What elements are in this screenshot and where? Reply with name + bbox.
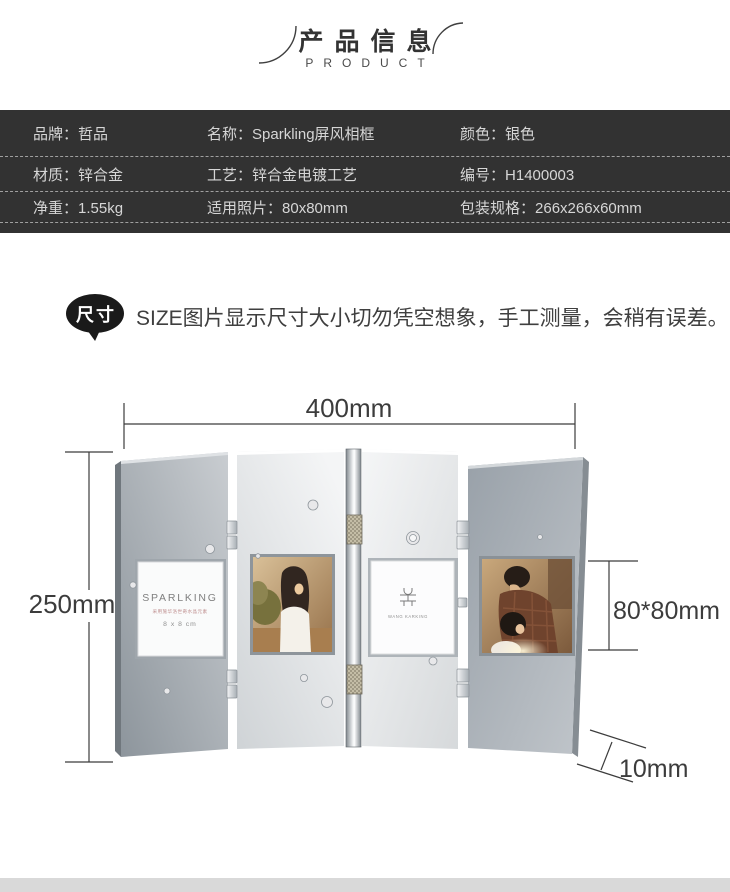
spec-photo-size: 适用照片：80x80mm	[207, 197, 460, 218]
hinge-icon	[457, 536, 469, 549]
photo-frame: SPARLKING 采用施华洛世奇水晶元素 8 x 8 cm	[115, 449, 589, 757]
crystal-icon	[130, 582, 136, 588]
crystal-icon	[300, 674, 307, 681]
crystal-icon	[206, 545, 215, 554]
size-badge-label: 尺寸	[74, 301, 116, 327]
logo-caption-text: WANG KARKING	[388, 614, 428, 619]
size-note-text: SIZE图片显示尺寸大小切勿凭空想象，手工测量，会稍有误差。	[136, 302, 729, 332]
crystal-icon	[429, 657, 437, 665]
center-knurled-hinge-icon	[347, 665, 362, 694]
hinge-icon	[457, 684, 469, 697]
page-title: 产品信息	[0, 22, 730, 58]
spec-row-1: 品牌：哲品 名称：Sparkling屏风相框 颜色：银色	[0, 110, 730, 157]
spec-brand: 品牌：哲品	[33, 123, 207, 144]
dim-thickness-label: 10mm	[619, 755, 688, 783]
size-note-section: 尺寸 SIZE图片显示尺寸大小切勿凭空想象，手工测量，会稍有误差。	[0, 286, 730, 346]
spec-sku: 编号：H1400003	[460, 164, 730, 185]
crystal-icon	[164, 688, 170, 694]
header: 产品信息 PRODUCT	[0, 0, 730, 95]
frame-panel-1: SPARLKING 采用施华洛世奇水晶元素 8 x 8 cm	[115, 452, 228, 757]
dim-width-label: 400mm	[306, 393, 393, 423]
frame-panel-3: WANG KARKING	[362, 449, 458, 749]
product-figure: SPARLKING 采用施华洛世奇水晶元素 8 x 8 cm	[0, 380, 730, 810]
center-hinge-strip	[346, 449, 361, 747]
spec-name: 名称：Sparkling屏风相框	[207, 123, 460, 144]
insert-brand-text: SPARLKING	[142, 592, 218, 604]
spec-table: 品牌：哲品 名称：Sparkling屏风相框 颜色：银色 材质：锌合金 工艺：锌…	[0, 110, 730, 233]
photo-woman	[248, 557, 332, 652]
spec-craft: 工艺：锌合金电镀工艺	[207, 164, 460, 185]
crystal-icon	[538, 535, 543, 540]
spec-material: 材质：锌合金	[33, 164, 207, 185]
size-badge: 尺寸	[66, 294, 124, 333]
insert-size-text: 8 x 8 cm	[163, 621, 197, 628]
crystal-icon	[256, 554, 261, 559]
hinge-icon	[458, 598, 467, 607]
insert-subtitle-text: 采用施华洛世奇水晶元素	[153, 608, 208, 615]
spec-package: 包装规格：266x266x60mm	[460, 197, 730, 218]
crystal-icon	[308, 500, 318, 510]
crystal-icon	[322, 697, 333, 708]
hinge-icon	[457, 521, 469, 534]
photo-father-child	[482, 559, 572, 664]
bottom-bar	[0, 878, 730, 892]
hinge-icon	[227, 521, 237, 534]
center-knurled-hinge-icon	[347, 515, 362, 544]
insert-card: SPARLKING 采用施华洛世奇水晶元素 8 x 8 cm	[135, 559, 226, 659]
spec-row-2: 材质：锌合金 工艺：锌合金电镀工艺 编号：H1400003	[0, 157, 730, 192]
dim-height-label: 250mm	[29, 589, 116, 619]
hinge-icon	[227, 685, 237, 698]
spec-weight: 净重：1.55kg	[33, 197, 207, 218]
page-subtitle: PRODUCT	[0, 56, 730, 70]
product-info-page: 产品信息 PRODUCT 品牌：哲品 名称：Sparkling屏风相框 颜色：银…	[0, 0, 730, 892]
hinge-icon	[227, 536, 237, 549]
spec-row-3: 净重：1.55kg 适用照片：80x80mm 包装规格：266x266x60mm	[0, 192, 730, 223]
spec-color: 颜色：银色	[460, 123, 730, 144]
dim-photo-label: 80*80mm	[613, 597, 720, 625]
frame-panel-4	[468, 457, 589, 757]
hinge-icon	[227, 670, 237, 683]
logo-card: WANG KARKING	[368, 558, 458, 657]
hinge-icon	[457, 669, 469, 682]
